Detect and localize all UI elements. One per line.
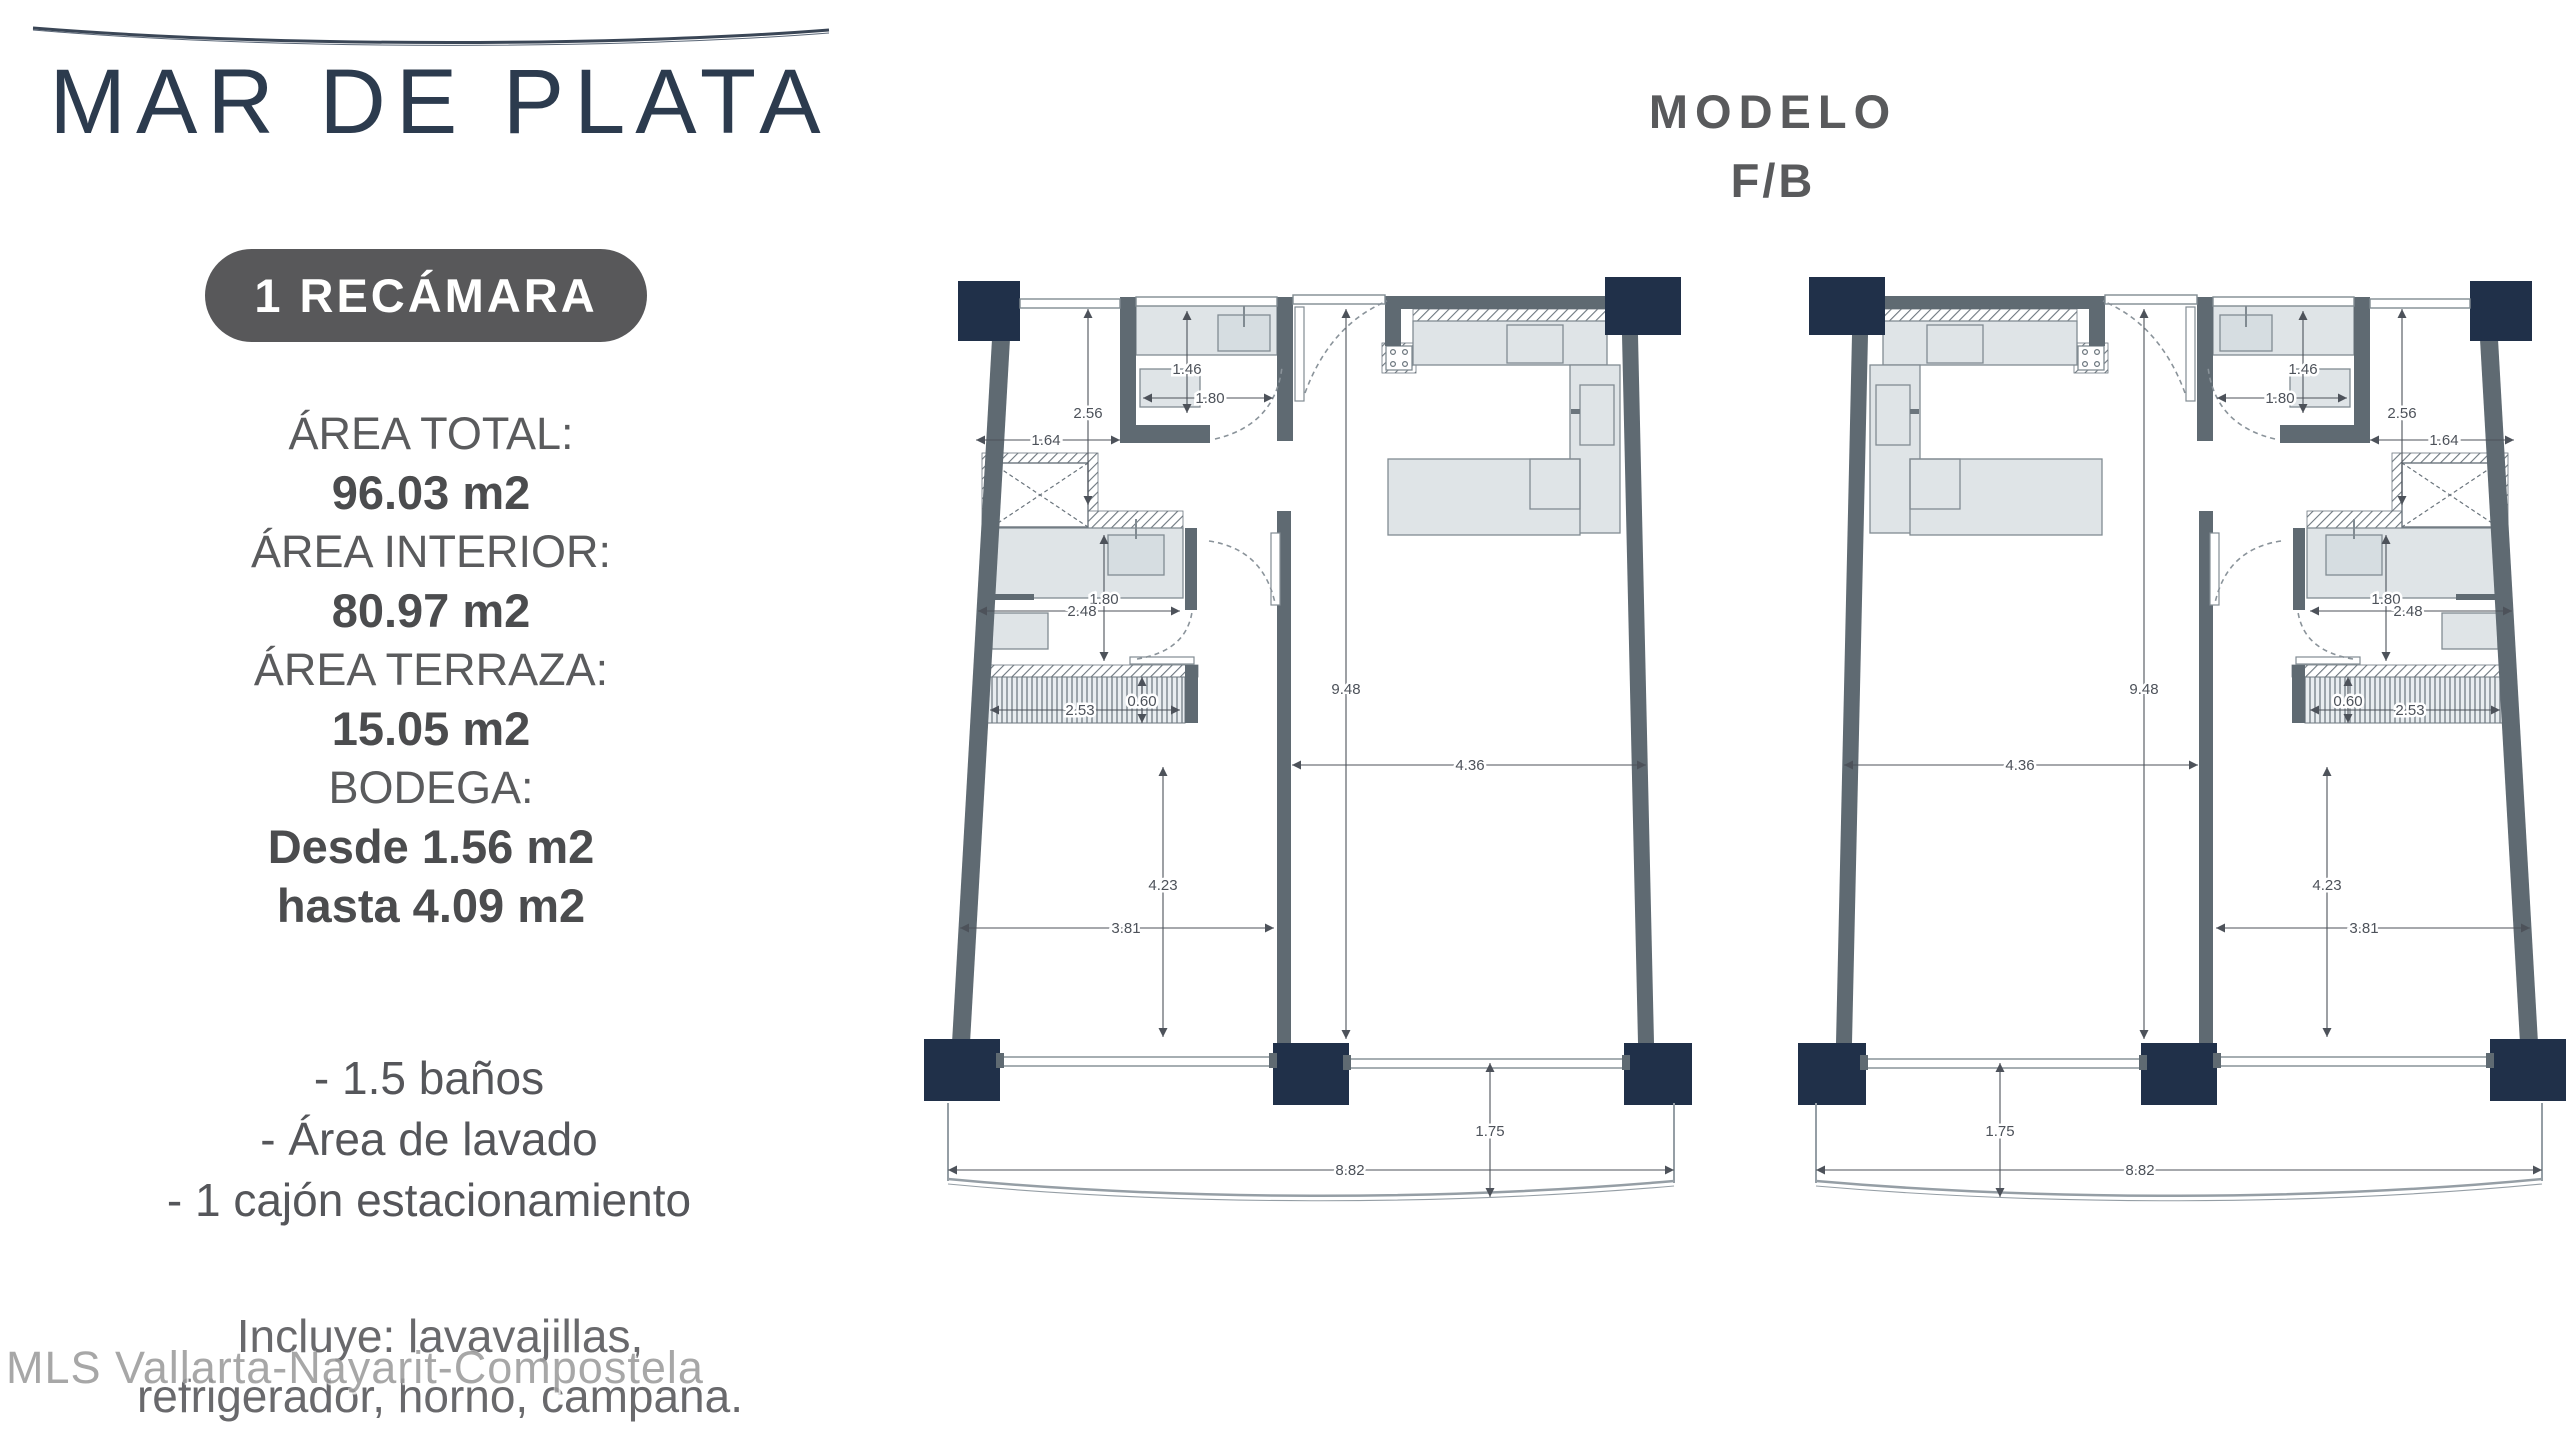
specs-list: ÁREA TOTAL:96.03 m2ÁREA INTERIOR:80.97 m… — [0, 404, 862, 935]
model-title-line1: MODELO — [1630, 84, 1916, 139]
bedrooms-badge: 1 RECÁMARA — [205, 249, 647, 342]
dimension-label: 4.23 — [2312, 877, 2341, 894]
feature-item: - Área de lavado — [0, 1109, 858, 1170]
floor-plan-right: 1.461.802.561.641.802.480.602.539.484.36… — [1798, 273, 2560, 1213]
page-title: MAR DE PLATA — [40, 50, 840, 155]
dimension-label: 1.80 — [1195, 390, 1224, 407]
dimension-label: 1.46 — [1172, 361, 1201, 378]
spec-line: BODEGA: — [0, 758, 862, 817]
dimension-label: 2.56 — [2387, 405, 2416, 422]
dimension-label: 2.56 — [1073, 405, 1102, 422]
flyer-page: MAR DE PLATA 1 RECÁMARA ÁREA TOTAL:96.03… — [0, 0, 2575, 1431]
unit-right-geometry — [1798, 277, 2566, 1201]
dimension-label: 2.48 — [2393, 603, 2422, 620]
dimension-label: 4.36 — [2005, 757, 2034, 774]
spec-line: hasta 4.09 m2 — [0, 876, 862, 935]
dimension-label: 1.46 — [2288, 361, 2317, 378]
model-title-line2: F/B — [1630, 153, 1916, 208]
model-title: MODELO F/B — [1630, 84, 1916, 208]
spec-line: ÁREA TOTAL: — [0, 404, 862, 463]
spec-line: Desde 1.56 m2 — [0, 817, 862, 876]
spec-line: 15.05 m2 — [0, 699, 862, 758]
dimension-label: 2.53 — [1065, 702, 1094, 719]
dimension-label: 1.75 — [1985, 1123, 2014, 1140]
dimension-label: 1.80 — [2265, 390, 2294, 407]
spec-line: 80.97 m2 — [0, 581, 862, 640]
dimension-label: 8.82 — [2125, 1162, 2154, 1179]
spec-line: ÁREA TERRAZA: — [0, 640, 862, 699]
spec-line: 96.03 m2 — [0, 463, 862, 522]
feature-item: - 1.5 baños — [0, 1048, 858, 1109]
dimension-label: 4.23 — [1148, 877, 1177, 894]
spec-line: ÁREA INTERIOR: — [0, 522, 862, 581]
feature-item: - 1 cajón estacionamiento — [0, 1170, 858, 1231]
dimension-label: 1.64 — [2429, 432, 2458, 449]
floor-plan-left: 1.461.802.561.641.802.480.602.539.484.36… — [930, 273, 1692, 1213]
bedrooms-badge-label: 1 RECÁMARA — [254, 268, 597, 323]
dimension-label: 3.81 — [2349, 920, 2378, 937]
dimension-label: 9.48 — [1331, 681, 1360, 698]
dimension-label: 1.75 — [1475, 1123, 1504, 1140]
dimension-label: 8.82 — [1335, 1162, 1364, 1179]
dimension-label: 0.60 — [1127, 693, 1156, 710]
features-list: - 1.5 baños- Área de lavado- 1 cajón est… — [0, 1048, 858, 1231]
watermark-text: MLS Vallarta-Nayarit-Compostela — [6, 1342, 704, 1394]
dimension-label: 1.64 — [1031, 432, 1060, 449]
dimension-label: 9.48 — [2129, 681, 2158, 698]
dimension-label: 2.53 — [2395, 702, 2424, 719]
dimension-label: 3.81 — [1111, 920, 1140, 937]
dimension-label: 2.48 — [1067, 603, 1096, 620]
dimension-label: 0.60 — [2333, 693, 2362, 710]
unit-left-geometry — [924, 277, 1692, 1201]
dimension-label: 4.36 — [1455, 757, 1484, 774]
